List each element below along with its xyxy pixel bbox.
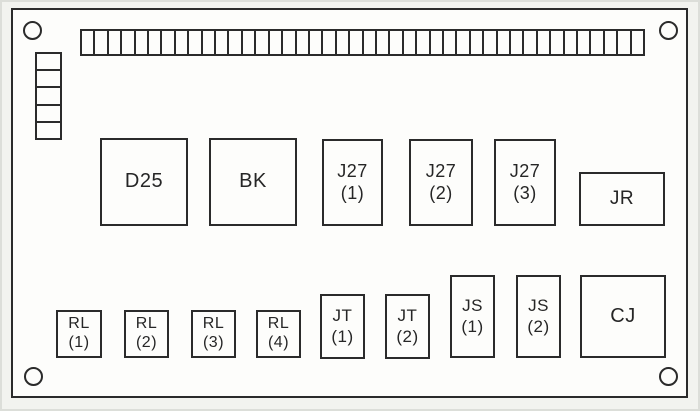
terminal-strip-segment <box>147 31 160 54</box>
component-box-cj: CJ <box>580 275 666 358</box>
terminal-strip-segment <box>415 31 428 54</box>
component-box-js-2: JS(2) <box>516 275 561 358</box>
component-label-line: J27 <box>426 161 457 182</box>
mounting-hole-icon <box>659 367 678 386</box>
component-label-line: RL <box>136 315 157 334</box>
terminal-strip-segment <box>496 31 509 54</box>
terminal-strip-segment <box>187 31 200 54</box>
terminal-strip-segment <box>268 31 281 54</box>
component-label-line: RL <box>268 315 289 334</box>
panel-diagram-canvas: D25BKJ27(1)J27(2)J27(3)JRRL(1)RL(2)RL(3)… <box>0 0 700 411</box>
component-label-line: (4) <box>268 334 289 353</box>
terminal-strip-segment <box>254 31 267 54</box>
terminal-strip-segment <box>174 31 187 54</box>
terminal-strip-segment <box>120 31 133 54</box>
terminal-strip-segment <box>536 31 549 54</box>
component-label-line: RL <box>68 315 89 334</box>
terminal-strip-segment <box>82 31 93 54</box>
terminal-strip-segment <box>589 31 602 54</box>
component-label-line: JS <box>462 296 483 316</box>
component-label-line: (3) <box>203 334 224 353</box>
terminal-strip-segment <box>455 31 468 54</box>
terminal-strip-segment <box>362 31 375 54</box>
connector-stack-cell <box>37 86 60 103</box>
connector-stack-cell <box>37 69 60 86</box>
terminal-strip-segment <box>214 31 227 54</box>
terminal-strip-segment <box>469 31 482 54</box>
terminal-strip-segment <box>241 31 254 54</box>
connector-stack-cell <box>37 104 60 121</box>
component-box-j27-1: J27(1) <box>322 139 383 226</box>
left-connector-stack <box>35 52 62 140</box>
component-label-line: (1) <box>341 183 365 204</box>
terminal-strip-segment <box>321 31 334 54</box>
component-label-line: D25 <box>125 170 163 194</box>
terminal-strip-segment <box>335 31 348 54</box>
terminal-strip-segment <box>134 31 147 54</box>
component-label-line: (1) <box>331 327 353 347</box>
terminal-strip-segment <box>429 31 442 54</box>
component-label-line: JT <box>333 306 353 326</box>
terminal-strip-segment <box>201 31 214 54</box>
component-box-jt-1: JT(1) <box>320 294 365 359</box>
component-box-rl-2: RL(2) <box>124 310 169 358</box>
component-box-jt-2: JT(2) <box>385 294 430 359</box>
connector-stack-cell <box>37 54 60 69</box>
component-box-j27-3: J27(3) <box>494 139 556 226</box>
terminal-strip <box>80 29 645 56</box>
component-label-line: RL <box>203 315 224 334</box>
terminal-strip-segment <box>522 31 535 54</box>
terminal-strip-segment <box>603 31 616 54</box>
component-label-line: JT <box>398 306 418 326</box>
terminal-strip-segment <box>509 31 522 54</box>
terminal-strip-segment <box>295 31 308 54</box>
component-box-rl-1: RL(1) <box>56 310 102 358</box>
terminal-strip-segment <box>107 31 120 54</box>
mounting-hole-icon <box>659 21 678 40</box>
terminal-strip-segment <box>308 31 321 54</box>
mounting-hole-icon <box>24 367 43 386</box>
component-label-line: (2) <box>136 334 157 353</box>
terminal-strip-segment <box>93 31 106 54</box>
terminal-strip-segment <box>388 31 401 54</box>
component-label-line: (2) <box>527 317 549 337</box>
component-label-line: (1) <box>68 334 89 353</box>
terminal-strip-segment <box>281 31 294 54</box>
component-label-line: (2) <box>429 183 453 204</box>
component-label-line: (2) <box>396 327 418 347</box>
terminal-strip-segment <box>160 31 173 54</box>
component-box-bk: BK <box>209 138 297 226</box>
component-label-line: (3) <box>513 183 537 204</box>
terminal-strip-segment <box>375 31 388 54</box>
component-box-rl-3: RL(3) <box>191 310 236 358</box>
terminal-strip-segment <box>348 31 361 54</box>
component-label-line: BK <box>239 170 267 194</box>
component-box-j27-2: J27(2) <box>409 139 473 226</box>
component-label-line: J27 <box>510 161 541 182</box>
terminal-strip-segment <box>402 31 415 54</box>
terminal-strip-segment <box>227 31 240 54</box>
terminal-strip-segment <box>549 31 562 54</box>
terminal-strip-segment <box>630 31 643 54</box>
component-box-jr: JR <box>579 172 665 226</box>
terminal-strip-segment <box>616 31 629 54</box>
terminal-strip-segment <box>482 31 495 54</box>
component-label-line: J27 <box>337 161 368 182</box>
terminal-strip-segment <box>576 31 589 54</box>
component-label-line: JR <box>610 188 634 210</box>
component-label-line: JS <box>528 296 549 316</box>
component-box-d25: D25 <box>100 138 188 226</box>
component-box-js-1: JS(1) <box>450 275 495 358</box>
component-box-rl-4: RL(4) <box>256 310 301 358</box>
terminal-strip-segment <box>442 31 455 54</box>
mounting-hole-icon <box>23 21 42 40</box>
terminal-strip-segment <box>563 31 576 54</box>
connector-stack-cell <box>37 121 60 138</box>
component-label-line: (1) <box>461 317 483 337</box>
component-label-line: CJ <box>610 305 635 329</box>
